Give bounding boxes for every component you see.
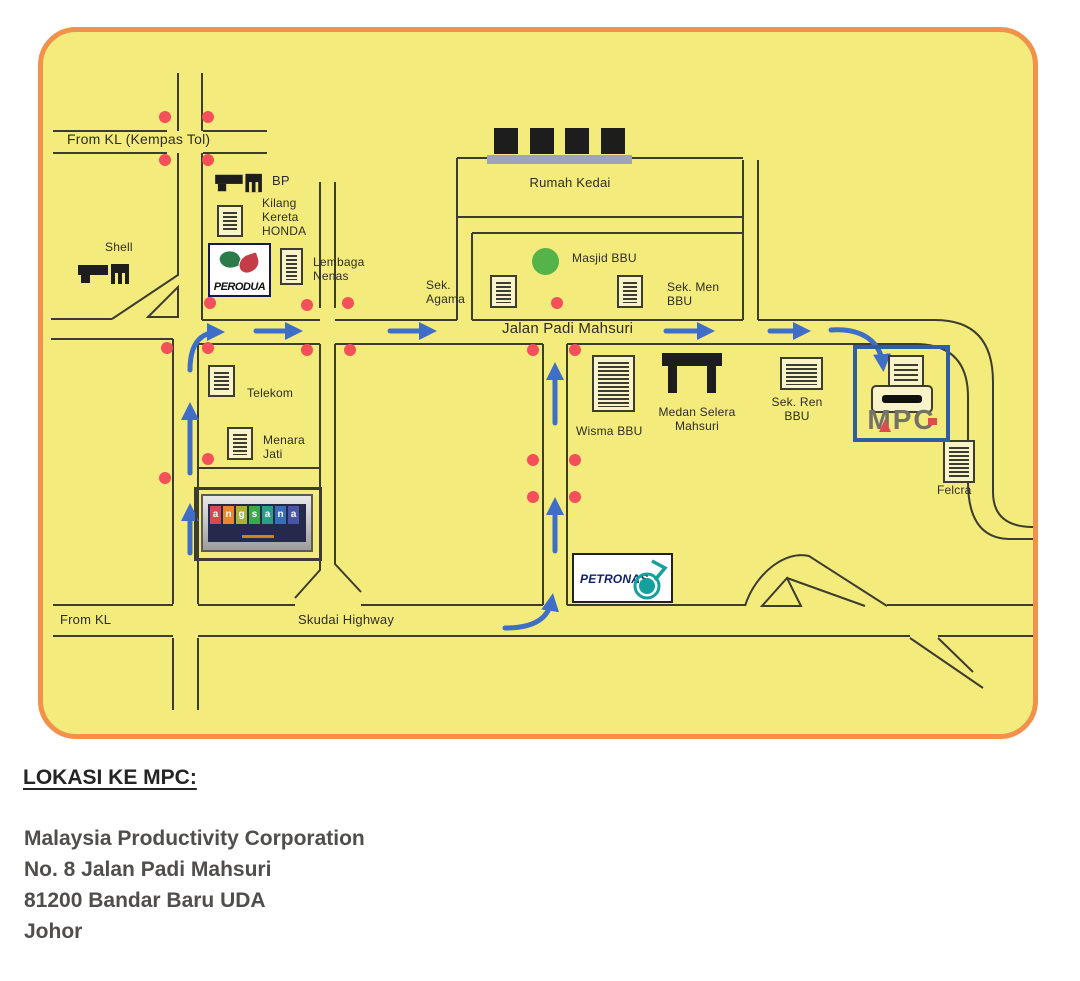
angsana-letter-tile: a	[288, 506, 299, 524]
mpc-destination-box: MPC	[853, 345, 950, 442]
angsana-billboard-photo: angsana	[201, 494, 313, 552]
shoprow-block-icon	[565, 128, 589, 154]
shoprow-block-icon	[601, 128, 625, 154]
mpc-red-accent	[928, 418, 937, 425]
label-sek-men-bbu: Sek. Men BBU	[667, 280, 719, 308]
traffic-light-dots	[159, 111, 581, 503]
label-sek-ren-bbu: Sek. Ren BBU	[766, 395, 828, 423]
perodua-emblem-icon	[218, 248, 262, 274]
label-felcra: Felcra	[937, 483, 972, 497]
label-medan-selera-mahsuri: Medan Selera Mahsuri	[651, 405, 743, 433]
mpc-building-icon-top	[888, 355, 924, 387]
telekom-building-icon	[208, 365, 235, 397]
shoprow-block-icon	[494, 128, 518, 154]
shell-station-icon	[78, 262, 130, 286]
angsana-letter-tile: n	[223, 506, 234, 524]
medan-selera-table-icon	[662, 353, 722, 393]
petronas-drop-icon	[632, 558, 668, 600]
honda-building-icon	[217, 205, 243, 237]
label-kilang-kereta-honda: Kilang Kereta HONDA	[262, 196, 306, 238]
label-bp: BP	[272, 174, 290, 188]
label-jalan-padi-mahsuri: Jalan Padi Mahsuri	[502, 322, 633, 336]
label-masjid-bbu: Masjid BBU	[572, 251, 637, 265]
masjid-bbu-circle-icon	[532, 248, 559, 275]
label-from-kl-kempas-tol: From KL (Kempas Tol)	[67, 132, 210, 146]
angsana-letter-tile: n	[275, 506, 286, 524]
angsana-billboard-block: angsana	[195, 488, 321, 560]
label-lembaga-nenas: Lembaga Nenas	[313, 255, 364, 283]
label-shell: Shell	[105, 240, 133, 254]
footer-heading: LOKASI KE MPC:	[23, 766, 197, 790]
label-skudai-highway: Skudai Highway	[298, 613, 394, 627]
wisma-bbu-building-icon	[592, 355, 635, 412]
perodua-wordmark: PERODUA	[210, 281, 269, 293]
shoprow-base-bar	[487, 155, 632, 164]
address-line-state: Johor	[24, 920, 82, 944]
sek-agama-building-icon	[490, 275, 517, 308]
shoprow-block-icon	[530, 128, 554, 154]
menara-jati-building-icon	[227, 427, 253, 460]
sek-ren-bbu-building-icon	[780, 357, 823, 390]
label-from-kl: From KL	[60, 613, 111, 627]
angsana-letter-tile: a	[262, 506, 273, 524]
angsana-letter-tile: s	[249, 506, 260, 524]
label-wisma-bbu: Wisma BBU	[576, 424, 642, 438]
angsana-signboard: angsana	[208, 504, 306, 542]
angsana-letter-tile: g	[236, 506, 247, 524]
address-line-organization: Malaysia Productivity Corporation	[24, 827, 365, 851]
page: { "map": { "labels": { "from_kl_tol": "F…	[0, 0, 1080, 981]
lembaga-nenas-building-icon	[280, 248, 303, 285]
address-line-street: No. 8 Jalan Padi Mahsuri	[24, 858, 271, 882]
sek-men-bbu-building-icon	[617, 275, 643, 308]
label-telekom: Telekom	[247, 386, 293, 400]
bp-station-icon	[213, 172, 265, 194]
address-line-city: 81200 Bandar Baru UDA	[24, 889, 266, 913]
petronas-logo-box: PETRONAS	[572, 553, 673, 603]
location-map: From KL (Kempas Tol) BP Kilang Kereta HO…	[38, 27, 1038, 739]
angsana-subtext-strip	[242, 535, 274, 538]
mpc-red-accent	[879, 419, 891, 432]
label-rumah-kedai: Rumah Kedai	[515, 176, 625, 190]
angsana-letter-tile: a	[210, 506, 221, 524]
label-menara-jati: Menara Jati	[263, 433, 305, 461]
perodua-logo-box: PERODUA	[208, 243, 271, 297]
label-sek-agama: Sek. Agama	[426, 278, 465, 306]
felcra-building-icon	[943, 440, 975, 483]
